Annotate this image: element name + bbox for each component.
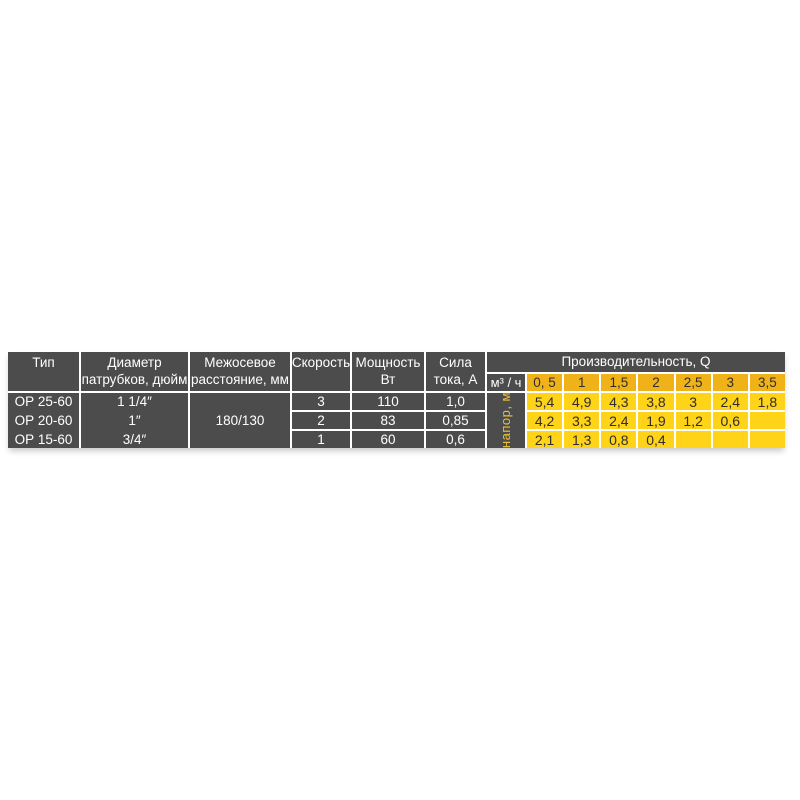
head-value-cell: 5,4 xyxy=(527,393,562,410)
speed-cell: 2 xyxy=(292,412,350,429)
head-value-cell: 4,3 xyxy=(601,393,636,410)
diameters-cell: 1 1/4″ 1″ 3/4″ xyxy=(81,393,188,448)
head-value-cell: 3 xyxy=(676,393,711,410)
head-value-cell: 4,9 xyxy=(564,393,599,410)
head-value-cell xyxy=(750,431,785,448)
flow-unit-cell: м³ / ч xyxy=(487,374,525,391)
power-cell: 60 xyxy=(352,431,424,448)
col-header-power: Мощность Вт xyxy=(352,352,424,391)
flow-col-header-3: 1,5 xyxy=(601,374,636,391)
head-value-cell: 2,1 xyxy=(527,431,562,448)
head-value-cell: 4,2 xyxy=(527,412,562,429)
diameter-value: 3/4″ xyxy=(117,432,152,448)
flow-col-header-6: 3 xyxy=(713,374,748,391)
head-value-cell: 1,8 xyxy=(750,393,785,410)
col-header-current-line1: Сила xyxy=(439,354,472,371)
current-cell: 1,0 xyxy=(426,393,485,410)
head-value-cell xyxy=(713,431,748,448)
pump-types-cell: ОР 25-60 ОР 20-60 ОР 15-60 xyxy=(8,393,79,448)
diameter-value: 1 1/4″ xyxy=(117,394,152,410)
flow-col-header-4: 2 xyxy=(638,374,673,391)
head-value-cell: 1,3 xyxy=(564,431,599,448)
head-value-cell: 2,4 xyxy=(601,412,636,429)
speed-cell: 3 xyxy=(292,393,350,410)
col-header-current-line2: тока, А xyxy=(434,371,478,388)
speed-cell: 1 xyxy=(292,431,350,448)
pump-type-label: ОР 25-60 xyxy=(15,394,73,410)
pump-type-label: ОР 20-60 xyxy=(15,413,73,429)
pump-spec-table: Тип Диаметр патрубков, дюйм Межосевое ра… xyxy=(8,352,785,448)
head-value-cell: 0,6 xyxy=(713,412,748,429)
head-value-cell: 3,8 xyxy=(638,393,673,410)
flow-col-header-2: 1 xyxy=(564,374,599,391)
col-header-capacity: Производительность, Q xyxy=(487,352,785,372)
col-header-current: Сила тока, А xyxy=(426,352,485,391)
axial-distance-cell: 180/130 xyxy=(190,393,290,448)
current-cell: 0,6 xyxy=(426,431,485,448)
col-header-axial-line1: Межосевое xyxy=(204,354,276,371)
head-value-cell xyxy=(676,431,711,448)
col-header-type: Тип xyxy=(8,352,79,391)
head-unit-cell: напор, м xyxy=(487,393,525,448)
power-cell: 83 xyxy=(352,412,424,429)
col-header-axial-line2: расстояние, мм xyxy=(191,371,289,388)
head-unit-label: напор, м xyxy=(498,392,514,448)
flow-col-header-7: 3,5 xyxy=(750,374,785,391)
page: Тип Диаметр патрубков, дюйм Межосевое ра… xyxy=(0,0,800,800)
head-value-cell xyxy=(750,412,785,429)
diameter-value: 1″ xyxy=(117,413,152,429)
flow-col-header-5: 2,5 xyxy=(676,374,711,391)
col-header-diameter-line1: Диаметр xyxy=(107,354,161,371)
head-value-cell: 2,4 xyxy=(713,393,748,410)
col-header-speed: Скорость xyxy=(292,352,350,391)
power-cell: 110 xyxy=(352,393,424,410)
col-header-power-line1: Мощность xyxy=(356,354,421,371)
col-header-diameter-line2: патрубков, дюйм xyxy=(82,371,188,388)
col-header-diameter: Диаметр патрубков, дюйм xyxy=(81,352,188,391)
pump-type-label: ОР 15-60 xyxy=(15,432,73,448)
col-header-power-line2: Вт xyxy=(381,371,396,388)
head-value-cell: 0,8 xyxy=(601,431,636,448)
head-value-cell: 3,3 xyxy=(564,412,599,429)
flow-col-header-1: 0, 5 xyxy=(527,374,562,391)
head-value-cell: 0,4 xyxy=(638,431,673,448)
head-value-cell: 1,9 xyxy=(638,412,673,429)
head-value-cell: 1,2 xyxy=(676,412,711,429)
current-cell: 0,85 xyxy=(426,412,485,429)
col-header-axial-distance: Межосевое расстояние, мм xyxy=(190,352,290,391)
